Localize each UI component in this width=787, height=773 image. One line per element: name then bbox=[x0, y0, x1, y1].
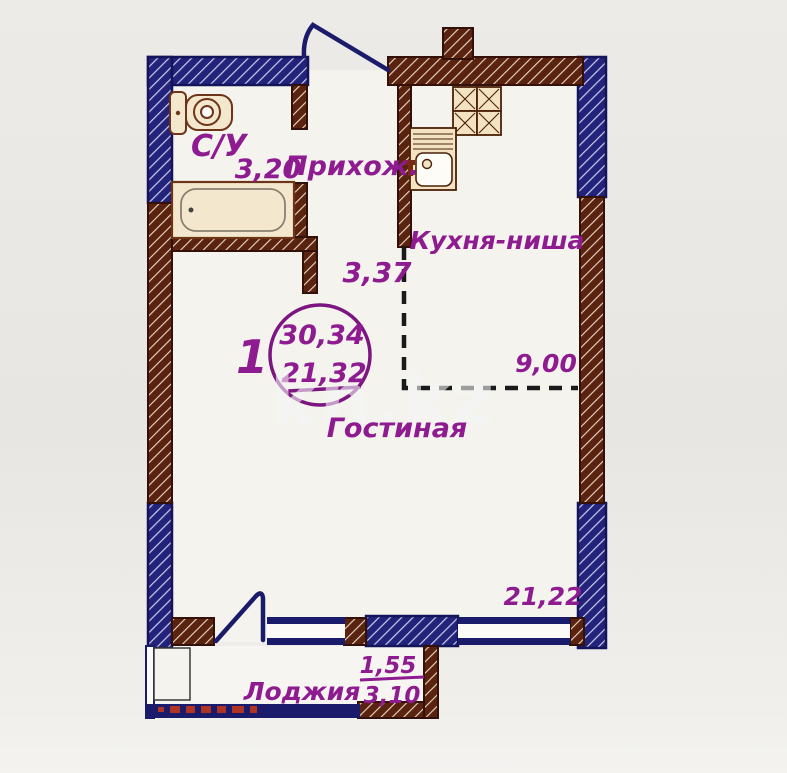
wall-left-mid-brown bbox=[148, 203, 172, 503]
wall-bottom-left-brown bbox=[172, 618, 214, 645]
window-left bbox=[267, 617, 345, 645]
hallway-label: Прихож. bbox=[285, 151, 419, 182]
wall-left-bottom-blue bbox=[148, 503, 172, 648]
wall-top-right-brown bbox=[388, 57, 583, 85]
floor-plan-image: 1 30,34 21,32 kn.kz С/У 3,20 Прихож. 3,3… bbox=[0, 0, 787, 773]
bathtub bbox=[172, 182, 294, 238]
window-right bbox=[458, 617, 570, 645]
wall-bathroom-divider-top bbox=[292, 85, 307, 129]
loggia-small-marks bbox=[158, 706, 257, 713]
toilet bbox=[170, 92, 232, 134]
loggia-label: Лоджия bbox=[243, 677, 361, 706]
wall-bottom-jamb-brown bbox=[570, 618, 584, 645]
living-room-area: 21,22 bbox=[503, 582, 582, 611]
kitchen-label: Кухня-ниша bbox=[410, 226, 585, 255]
loggia-compartment bbox=[154, 648, 190, 700]
apartment-number: 1 bbox=[236, 330, 268, 384]
kitchen-area: 9,00 bbox=[515, 349, 577, 378]
entrance-door-leaf bbox=[304, 25, 388, 70]
loggia-area-full: 3,10 bbox=[364, 683, 421, 709]
wall-bottom-pier-brown bbox=[344, 618, 366, 645]
floor-plan-svg: 1 30,34 21,32 kn.kz С/У 3,20 Прихож. 3,3… bbox=[0, 0, 787, 773]
wall-bathroom-bottom bbox=[172, 237, 317, 251]
wall-top-stub bbox=[443, 28, 473, 59]
hallway-area: 3,37 bbox=[342, 256, 412, 289]
living-room-label: Гостиная bbox=[327, 413, 468, 444]
loggia-area-reduced: 1,55 bbox=[360, 653, 417, 679]
wall-bottom-pier-blue bbox=[366, 616, 458, 646]
wall-hallway-stub bbox=[303, 251, 317, 293]
wall-left-top-blue bbox=[148, 57, 172, 203]
stamp-total-area: 30,34 bbox=[279, 320, 364, 351]
stove bbox=[453, 87, 501, 135]
wall-loggia-right bbox=[424, 646, 438, 718]
